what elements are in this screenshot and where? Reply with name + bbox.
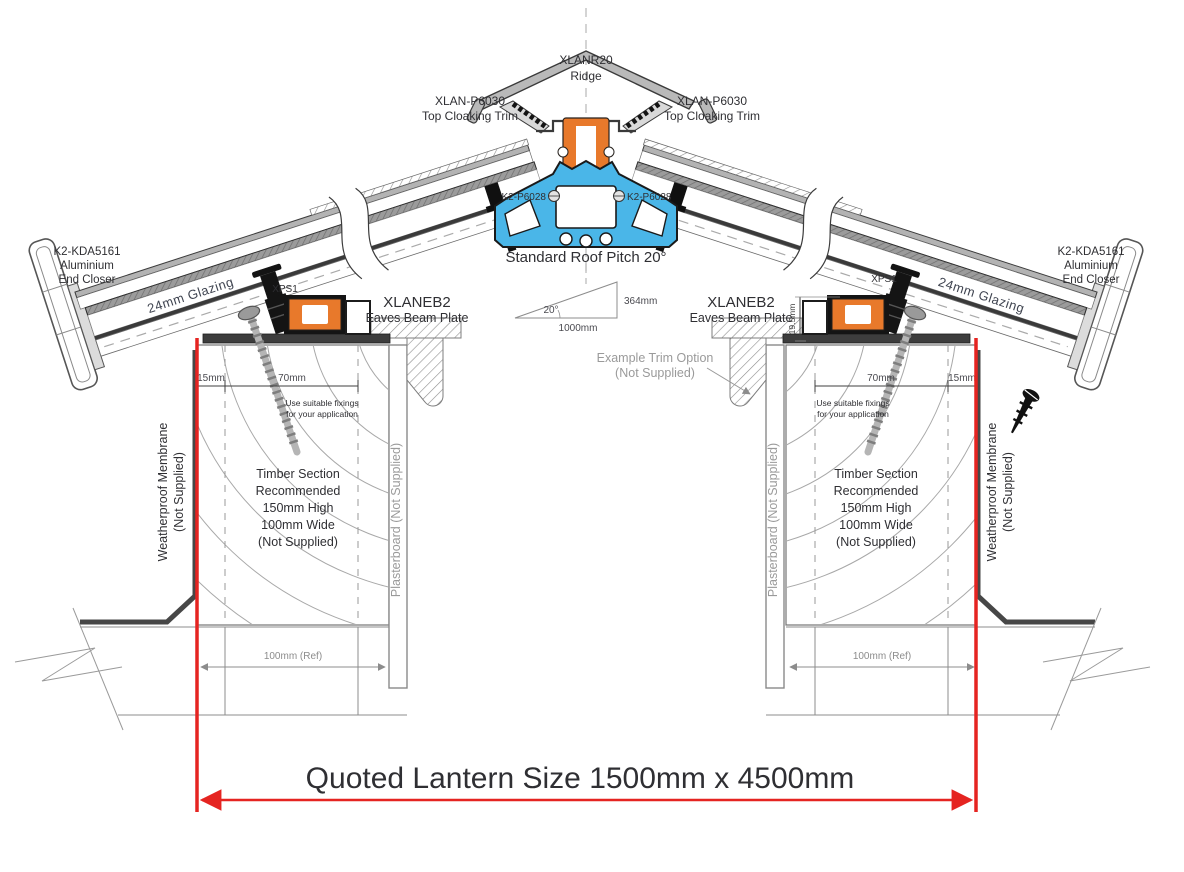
svg-text:(Not Supplied): (Not Supplied) xyxy=(615,366,695,380)
left-ridge-fixing-label: K2-P6028 xyxy=(502,192,547,203)
svg-text:Weatherproof Membrane: Weatherproof Membrane xyxy=(985,423,999,562)
svg-text:Aluminium: Aluminium xyxy=(60,260,114,272)
left-ref-dimension: 100mm (Ref) xyxy=(201,651,385,667)
right-glazing-pane xyxy=(635,162,1086,315)
svg-text:for your application: for your application xyxy=(817,409,889,419)
right-fixing-note: Use suitable fixings for your applicatio… xyxy=(816,398,889,419)
svg-text:(Not Supplied): (Not Supplied) xyxy=(836,535,916,549)
svg-text:(Not Supplied): (Not Supplied) xyxy=(1001,452,1015,532)
quoted-size-label: Quoted Lantern Size 1500mm x 4500mm xyxy=(306,762,855,795)
svg-text:Recommended: Recommended xyxy=(256,484,341,498)
right-timber-note: Timber Section Recommended 150mm High 10… xyxy=(834,467,919,549)
svg-text:Weatherproof Membrane: Weatherproof Membrane xyxy=(156,423,170,562)
svg-text:100mm Wide: 100mm Wide xyxy=(261,518,335,532)
right-cloaking-name-label: Top Cloaking Trim xyxy=(664,109,760,123)
pitch-run: 1000mm xyxy=(559,323,598,334)
dim-70mm: 70mm xyxy=(278,373,306,384)
pitch-rise: 364mm xyxy=(624,296,657,307)
svg-text:K2-KDA5161: K2-KDA5161 xyxy=(53,246,120,258)
left-eaves-beam xyxy=(284,295,370,334)
right-membrane-label: Weatherproof Membrane (Not Supplied) xyxy=(985,423,1015,562)
left-membrane-label: Weatherproof Membrane (Not Supplied) xyxy=(156,423,186,562)
left-break-mark xyxy=(15,608,123,730)
dim-100mm-ref: 100mm (Ref) xyxy=(853,651,911,662)
right-eaves-beam-name-label: Eaves Beam Plate xyxy=(690,311,793,325)
left-eaves-beam-name-label: Eaves Beam Plate xyxy=(366,311,469,325)
ceiling-lines xyxy=(80,627,1095,715)
right-break-mark xyxy=(1043,608,1150,730)
svg-text:End Closer: End Closer xyxy=(1063,274,1120,286)
roof-pitch-caption: Standard Roof Pitch 20° xyxy=(505,249,666,266)
ridge-part-label: XLANR20 xyxy=(559,53,613,67)
svg-text:100mm Wide: 100mm Wide xyxy=(839,518,913,532)
left-end-closer-label: K2-KDA5161 Aluminium End Closer xyxy=(53,246,120,286)
svg-text:K2-KDA5161: K2-KDA5161 xyxy=(1057,246,1124,258)
svg-text:Timber Section: Timber Section xyxy=(256,467,340,481)
svg-text:(Not Supplied): (Not Supplied) xyxy=(172,452,186,532)
right-ref-dimension: 100mm (Ref) xyxy=(790,651,974,667)
screw-icon xyxy=(1004,386,1042,436)
svg-text:Example Trim Option: Example Trim Option xyxy=(597,351,714,365)
svg-text:Recommended: Recommended xyxy=(834,484,919,498)
drawing-canvas: 24mm Glazing 24mm Glazing xyxy=(0,0,1184,872)
dim-70mm: 70mm xyxy=(867,373,895,384)
right-plasterboard-label: Plasterboard (Not Supplied) xyxy=(766,443,780,597)
left-cloaking-name-label: Top Cloaking Trim xyxy=(422,109,518,123)
right-ridge-fixing-label: K2-P6028 xyxy=(627,192,672,203)
left-beam-base-plate xyxy=(203,334,390,343)
svg-text:for your application: for your application xyxy=(286,409,358,419)
left-plasterboard-label: Plasterboard (Not Supplied) xyxy=(389,443,403,597)
svg-text:Aluminium: Aluminium xyxy=(1064,260,1118,272)
svg-text:End Closer: End Closer xyxy=(59,274,116,286)
svg-text:Use suitable fixings: Use suitable fixings xyxy=(285,398,358,408)
trim-option-label: Example Trim Option (Not Supplied) xyxy=(597,351,750,394)
left-glazing-pane xyxy=(85,162,536,315)
pitch-angle: 20° xyxy=(543,305,558,316)
ridge-name-label: Ridge xyxy=(570,69,602,83)
svg-text:Timber Section: Timber Section xyxy=(834,467,918,481)
dim-15mm: 15mm xyxy=(948,373,976,384)
dim-100mm-ref: 100mm (Ref) xyxy=(264,651,322,662)
left-timber-note: Timber Section Recommended 150mm High 10… xyxy=(256,467,341,549)
svg-text:Use suitable fixings: Use suitable fixings xyxy=(816,398,889,408)
svg-text:150mm High: 150mm High xyxy=(263,501,334,515)
left-fixing-note: Use suitable fixings for your applicatio… xyxy=(285,398,358,419)
right-end-closer-label: K2-KDA5161 Aluminium End Closer xyxy=(1057,246,1124,286)
roof-lantern-section-drawing: 24mm Glazing 24mm Glazing xyxy=(0,0,1184,872)
left-cloaking-part-label: XLAN-P6030 xyxy=(435,94,505,108)
right-cloaking-part-label: XLAN-P6030 xyxy=(677,94,747,108)
left-xps1-label: XPS1 xyxy=(272,284,298,295)
svg-text:150mm High: 150mm High xyxy=(841,501,912,515)
right-beam-base-plate xyxy=(783,334,970,343)
left-eaves-beam-part-label: XLANEB2 xyxy=(383,294,451,311)
dim-15mm: 15mm xyxy=(197,373,225,384)
svg-text:(Not Supplied): (Not Supplied) xyxy=(258,535,338,549)
right-eaves-beam xyxy=(803,295,889,334)
right-eaves-beam-part-label: XLANEB2 xyxy=(707,294,775,311)
right-xps1-label: XPS1 xyxy=(871,274,897,285)
